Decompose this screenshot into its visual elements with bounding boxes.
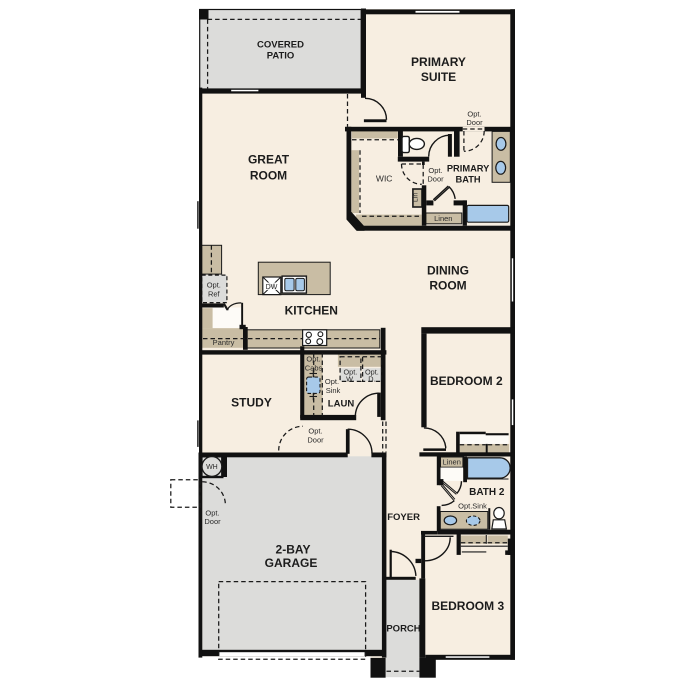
svg-text:Door: Door xyxy=(466,118,483,127)
svg-text:W.: W. xyxy=(346,375,355,384)
svg-text:PRIMARY: PRIMARY xyxy=(411,55,466,69)
svg-text:Cabs: Cabs xyxy=(305,363,323,372)
svg-text:Opt.: Opt. xyxy=(207,281,221,290)
svg-text:FOYER: FOYER xyxy=(387,512,420,523)
svg-text:DW: DW xyxy=(266,284,278,291)
svg-text:ROOM: ROOM xyxy=(429,278,466,292)
svg-text:GREAT: GREAT xyxy=(248,152,290,166)
svg-text:Lin: Lin xyxy=(413,193,420,202)
svg-text:Door: Door xyxy=(204,517,221,526)
svg-text:SUITE: SUITE xyxy=(421,70,456,84)
svg-text:ROOM: ROOM xyxy=(250,169,287,183)
svg-text:Ref: Ref xyxy=(208,289,221,298)
svg-text:Opt.Sink: Opt.Sink xyxy=(458,501,487,510)
svg-text:Door: Door xyxy=(427,175,444,184)
svg-text:PRIMARY: PRIMARY xyxy=(447,164,490,174)
svg-text:PATIO: PATIO xyxy=(267,51,295,62)
svg-text:Sink: Sink xyxy=(326,386,341,395)
svg-text:DINING: DINING xyxy=(427,264,469,278)
svg-text:Linen: Linen xyxy=(443,458,461,467)
svg-text:Pantry: Pantry xyxy=(213,338,235,347)
svg-text:Linen: Linen xyxy=(434,214,452,223)
svg-text:KITCHEN: KITCHEN xyxy=(285,304,338,318)
svg-text:WH: WH xyxy=(206,464,218,471)
svg-text:Opt.: Opt. xyxy=(308,427,322,436)
svg-text:BEDROOM 2: BEDROOM 2 xyxy=(430,374,503,388)
svg-text:LAUN: LAUN xyxy=(328,399,355,410)
svg-text:STUDY: STUDY xyxy=(231,396,272,410)
svg-text:Door: Door xyxy=(307,436,324,445)
svg-text:Opt.: Opt. xyxy=(306,355,320,364)
svg-text:BATH: BATH xyxy=(456,175,481,185)
svg-text:Opt.: Opt. xyxy=(205,508,219,517)
svg-text:GARAGE: GARAGE xyxy=(265,556,318,570)
svg-text:PORCH: PORCH xyxy=(386,624,420,635)
svg-text:BEDROOM 3: BEDROOM 3 xyxy=(431,599,504,613)
svg-text:2-BAY: 2-BAY xyxy=(276,543,311,557)
svg-text:Opt.: Opt. xyxy=(325,377,339,386)
svg-text:D.: D. xyxy=(368,375,375,384)
svg-text:WIC: WIC xyxy=(376,174,393,184)
svg-text:BATH 2: BATH 2 xyxy=(469,487,505,498)
svg-text:COVERED: COVERED xyxy=(257,40,304,51)
